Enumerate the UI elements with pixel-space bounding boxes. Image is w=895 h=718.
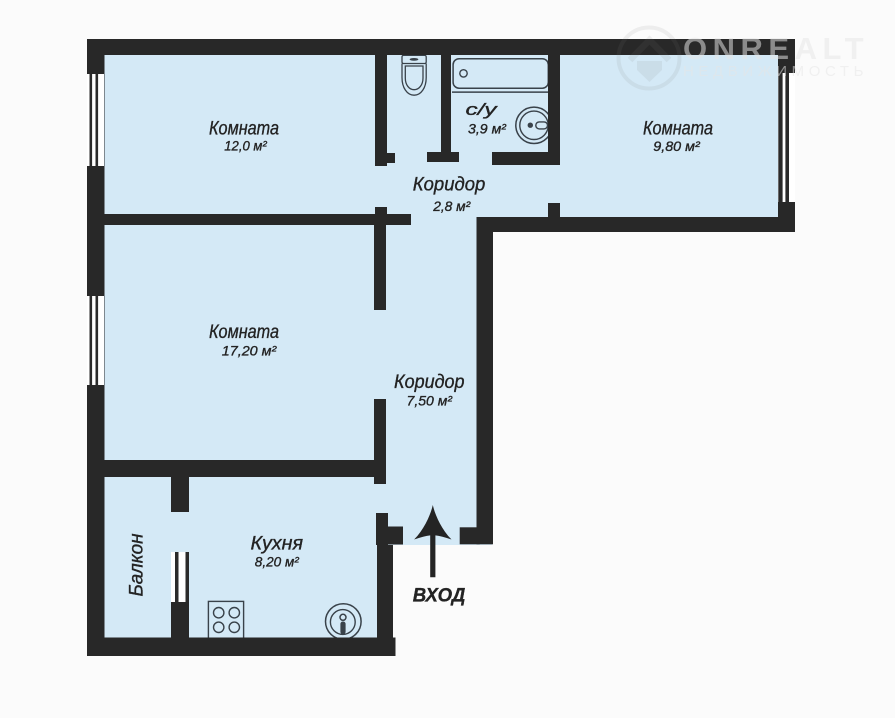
svg-text:12,0 м²: 12,0 м² [224, 138, 268, 154]
svg-text:НЕДВИЖИМОСТЬ: НЕДВИЖИМОСТЬ [683, 63, 868, 80]
svg-text:17,20 м²: 17,20 м² [222, 342, 278, 358]
svg-text:9,80 м²: 9,80 м² [653, 138, 701, 154]
svg-text:ВХОД: ВХОД [413, 586, 466, 607]
svg-text:2,8 м²: 2,8 м² [432, 198, 471, 214]
svg-text:3,9 м²: 3,9 м² [468, 121, 507, 137]
svg-text:Коридор: Коридор [394, 371, 465, 393]
svg-text:Комната: Комната [209, 118, 279, 140]
svg-text:7,50 м²: 7,50 м² [407, 393, 454, 409]
svg-text:8,20 м²: 8,20 м² [255, 554, 300, 570]
svg-text:Балкон: Балкон [126, 533, 148, 596]
svg-text:с/у: с/у [466, 100, 499, 119]
svg-text:Коридор: Коридор [413, 174, 486, 196]
svg-text:Комната: Комната [209, 321, 279, 343]
svg-text:Комната: Комната [643, 117, 713, 139]
svg-text:Кухня: Кухня [251, 533, 304, 555]
svg-text:ONREALT: ONREALT [683, 31, 869, 66]
